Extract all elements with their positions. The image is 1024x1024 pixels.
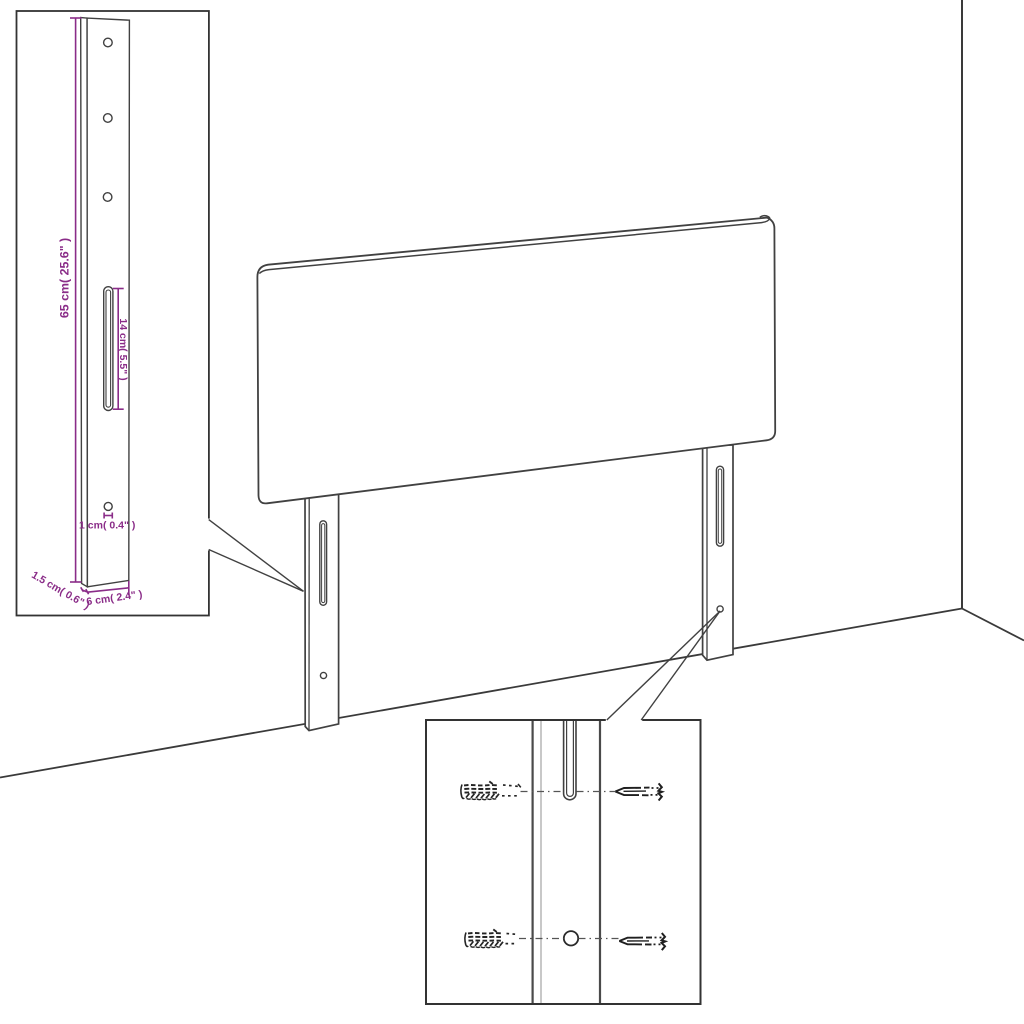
svg-text:14 cm( 5.5" ): 14 cm( 5.5" )	[117, 318, 129, 380]
svg-text:65 cm( 25.6" ): 65 cm( 25.6" )	[57, 238, 71, 318]
svg-text:1 cm( 0.4" ): 1 cm( 0.4" )	[79, 519, 135, 531]
